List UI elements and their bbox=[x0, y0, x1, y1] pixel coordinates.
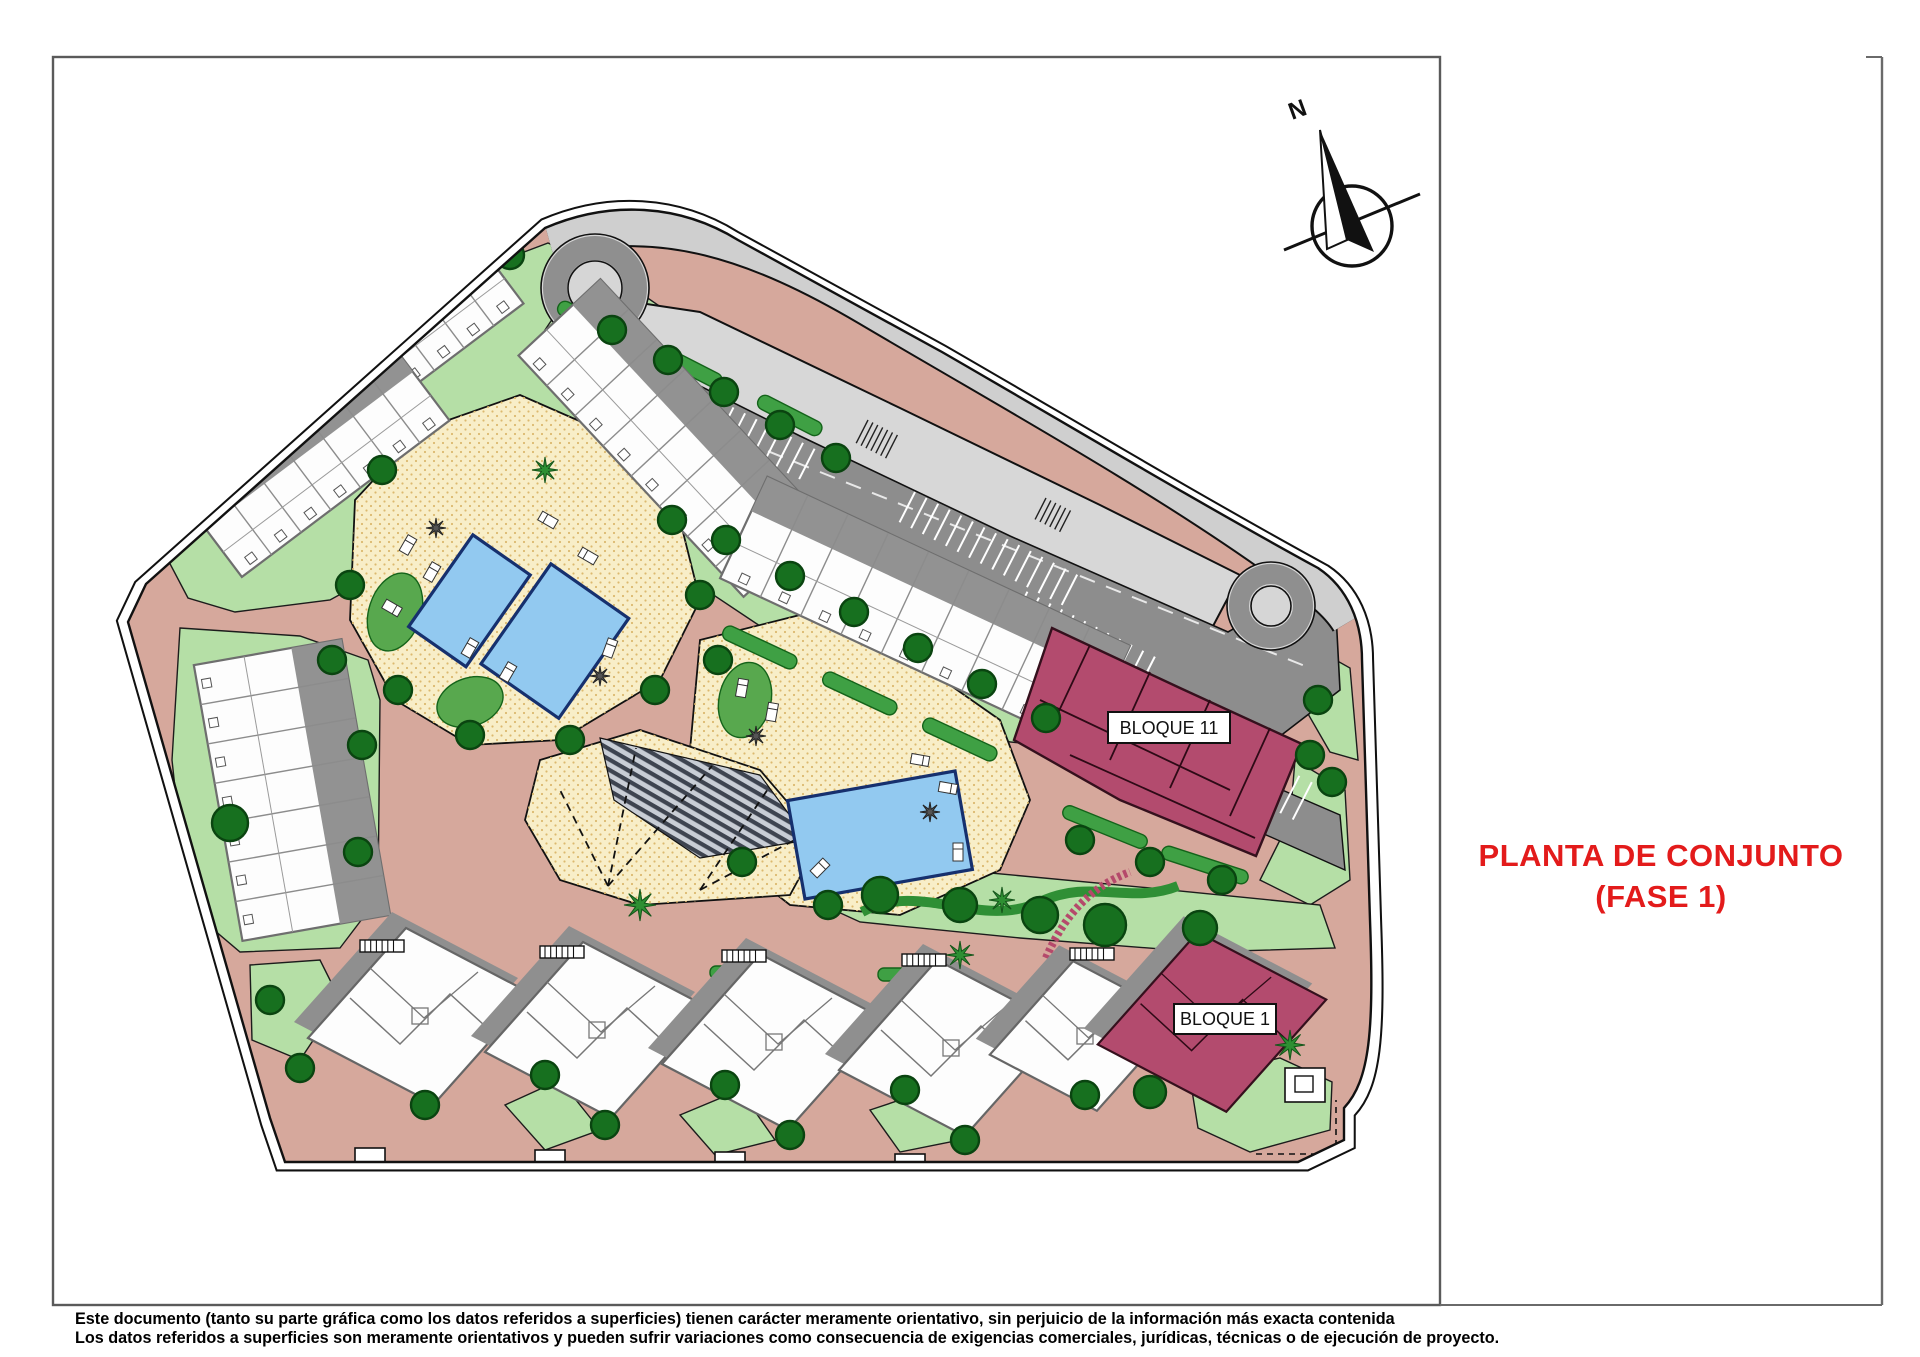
tree-icon bbox=[256, 986, 284, 1014]
palm-icon bbox=[1275, 1030, 1305, 1060]
tree-icon bbox=[641, 676, 669, 704]
tree-icon bbox=[1136, 848, 1164, 876]
utility-kiosk bbox=[1285, 1068, 1325, 1102]
footer-line1: Este documento (tanto su parte gráfica c… bbox=[75, 1310, 1875, 1329]
tree-icon bbox=[1022, 897, 1058, 933]
tree-icon bbox=[840, 598, 868, 626]
tree-icon bbox=[1066, 826, 1094, 854]
tree-icon bbox=[318, 646, 346, 674]
palm-icon bbox=[946, 941, 974, 969]
palm-icon bbox=[624, 889, 656, 921]
tree-icon bbox=[862, 877, 898, 913]
tree-icon bbox=[968, 670, 996, 698]
tree-icon bbox=[336, 571, 364, 599]
tree-icon bbox=[891, 1076, 919, 1104]
tree-icon bbox=[1032, 704, 1060, 732]
tree-icon bbox=[776, 1121, 804, 1149]
tree-icon bbox=[456, 721, 484, 749]
tree-icon bbox=[1208, 866, 1236, 894]
tree-icon bbox=[1084, 904, 1126, 946]
tree-icon bbox=[1134, 1076, 1166, 1108]
tree-icon bbox=[728, 848, 756, 876]
palm-icon bbox=[746, 726, 766, 746]
tree-icon bbox=[711, 1071, 739, 1099]
tree-icon bbox=[710, 378, 738, 406]
tree-icon bbox=[411, 1091, 439, 1119]
parking-comb-icon bbox=[540, 946, 584, 958]
tree-icon bbox=[591, 1111, 619, 1139]
palm-icon bbox=[920, 802, 940, 822]
palm-icon bbox=[532, 457, 558, 483]
sheet-title-line2: (FASE 1) bbox=[1442, 877, 1880, 918]
footer-line2: Los datos referidos a superficies son me… bbox=[75, 1329, 1875, 1348]
tree-icon bbox=[943, 888, 977, 922]
tree-icon bbox=[556, 726, 584, 754]
bloque-11-label-text: BLOQUE 11 bbox=[1120, 718, 1219, 738]
tree-icon bbox=[1183, 911, 1217, 945]
tree-icon bbox=[822, 444, 850, 472]
tree-icon bbox=[344, 838, 372, 866]
bloque-1-label-text: BLOQUE 1 bbox=[1180, 1009, 1270, 1029]
tree-icon bbox=[212, 805, 248, 841]
palm-icon bbox=[426, 518, 446, 538]
tree-icon bbox=[1071, 1081, 1099, 1109]
site-plan-sheet: BLOQUE 11 BLOQUE 1 N bbox=[0, 0, 1920, 1357]
tree-icon bbox=[1296, 741, 1324, 769]
sun-lounger-icon bbox=[953, 843, 963, 861]
tree-icon bbox=[1318, 768, 1346, 796]
tree-icon bbox=[712, 526, 740, 554]
tree-icon bbox=[348, 731, 376, 759]
tree-icon bbox=[598, 316, 626, 344]
footer-disclaimer: Este documento (tanto su parte gráfica c… bbox=[75, 1310, 1875, 1348]
tree-icon bbox=[658, 506, 686, 534]
tree-icon bbox=[904, 634, 932, 662]
bloque-11-label: BLOQUE 11 bbox=[1108, 712, 1230, 743]
tree-icon bbox=[531, 1061, 559, 1089]
tree-icon bbox=[814, 891, 842, 919]
tree-icon bbox=[686, 581, 714, 609]
parking-comb-icon bbox=[722, 950, 766, 962]
tree-icon bbox=[1304, 686, 1332, 714]
parking-comb-icon bbox=[1070, 948, 1114, 960]
parking-comb-icon bbox=[360, 940, 404, 952]
palm-icon bbox=[590, 666, 610, 686]
tree-icon bbox=[766, 411, 794, 439]
palm-icon bbox=[989, 887, 1015, 913]
tree-icon bbox=[704, 646, 732, 674]
tree-icon bbox=[286, 1054, 314, 1082]
roundabout-east bbox=[1227, 562, 1315, 650]
title-block: PLANTA DE CONJUNTO (FASE 1) bbox=[1442, 836, 1880, 918]
tree-icon bbox=[384, 676, 412, 704]
parking-comb-icon bbox=[902, 954, 946, 966]
bloque-1-label: BLOQUE 1 bbox=[1174, 1004, 1276, 1034]
tree-icon bbox=[654, 346, 682, 374]
tree-icon bbox=[776, 562, 804, 590]
tree-icon bbox=[951, 1126, 979, 1154]
tree-icon bbox=[368, 456, 396, 484]
sheet-title-line1: PLANTA DE CONJUNTO bbox=[1442, 836, 1880, 877]
